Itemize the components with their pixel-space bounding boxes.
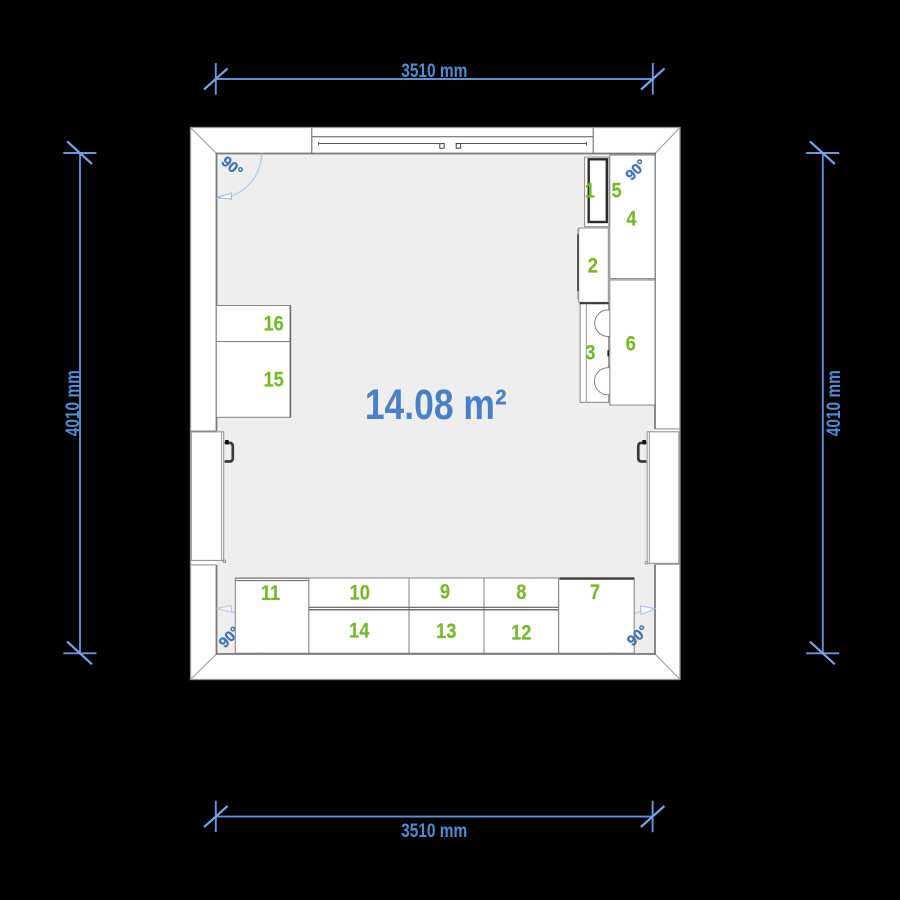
svg-text:3: 3	[585, 341, 595, 365]
svg-text:9: 9	[440, 580, 450, 604]
svg-text:5: 5	[612, 179, 622, 203]
svg-text:2: 2	[588, 254, 598, 278]
svg-text:11: 11	[261, 581, 280, 605]
svg-text:16: 16	[263, 312, 283, 336]
svg-text:15: 15	[263, 368, 283, 392]
svg-text:4: 4	[626, 207, 636, 231]
svg-text:6: 6	[626, 332, 636, 356]
svg-text:8: 8	[516, 581, 526, 605]
svg-text:14: 14	[349, 619, 369, 643]
svg-text:4010 mm: 4010 mm	[61, 370, 83, 436]
svg-text:14.08 m²: 14.08 m²	[365, 381, 507, 429]
svg-text:10: 10	[350, 581, 370, 605]
svg-text:3510 mm: 3510 mm	[401, 59, 467, 81]
svg-text:7: 7	[590, 581, 600, 605]
svg-text:13: 13	[436, 620, 456, 644]
svg-text:1: 1	[585, 179, 595, 203]
svg-text:3510 mm: 3510 mm	[401, 819, 467, 841]
svg-text:12: 12	[511, 621, 531, 645]
svg-text:4010 mm: 4010 mm	[822, 370, 844, 436]
